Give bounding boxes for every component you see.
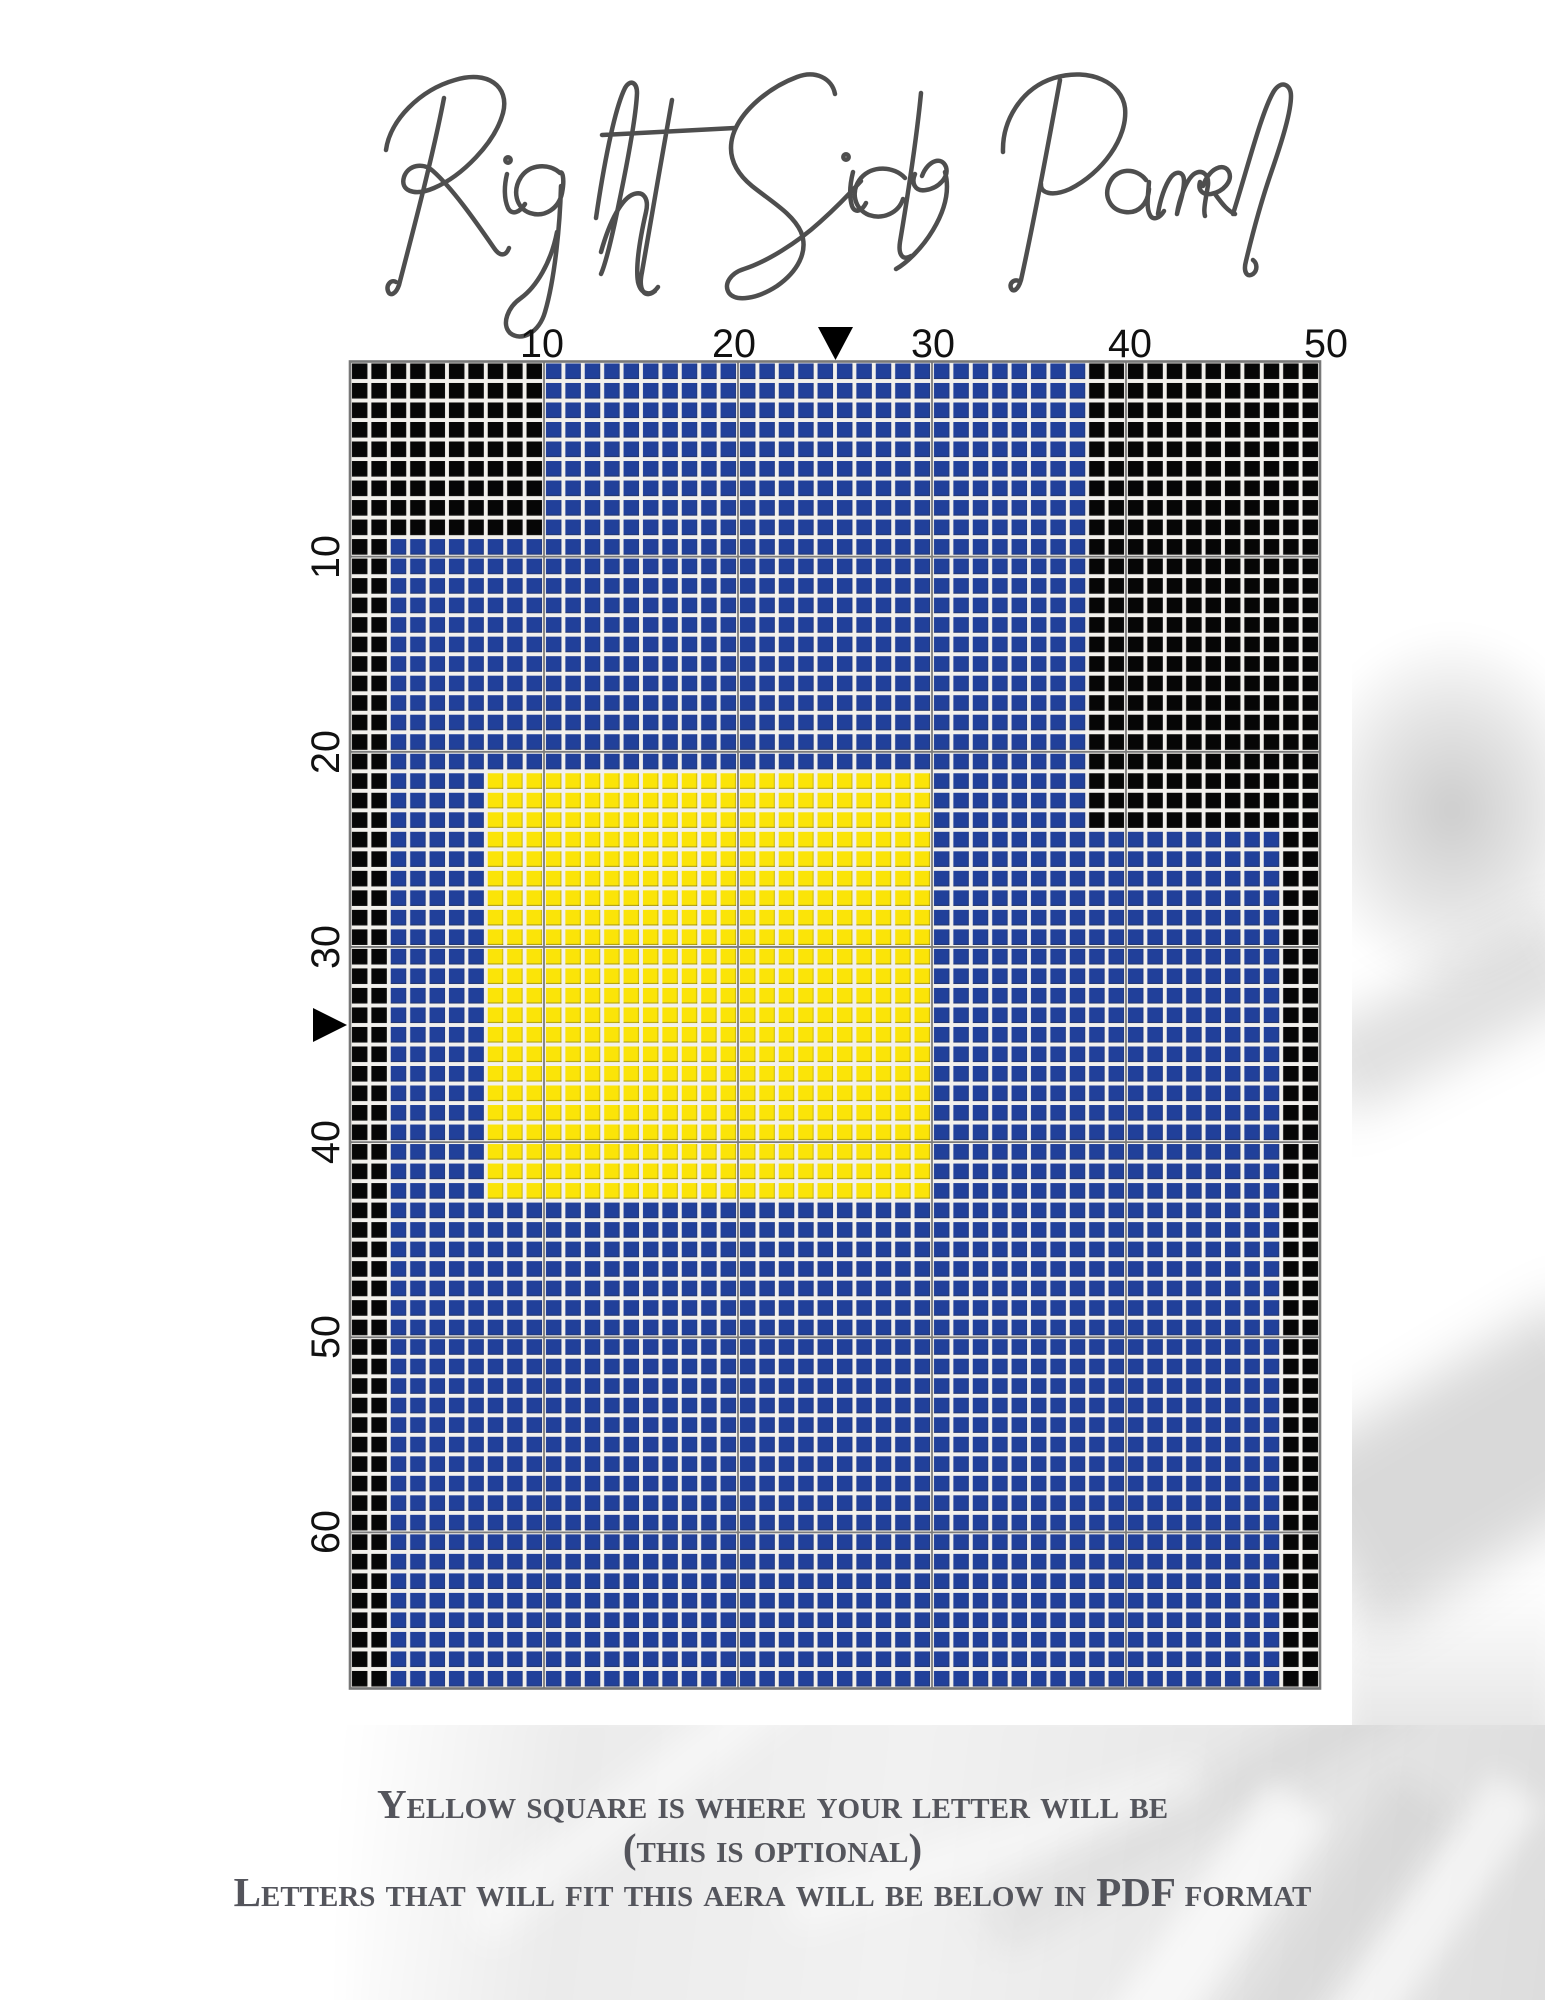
svg-text:20: 20 (712, 322, 756, 366)
svg-text:30: 30 (911, 322, 955, 366)
svg-text:30: 30 (304, 925, 348, 969)
svg-text:10: 10 (520, 322, 564, 366)
svg-text:40: 40 (304, 1120, 348, 1164)
svg-text:20: 20 (304, 730, 348, 774)
svg-text:50: 50 (304, 1315, 348, 1359)
svg-text:50: 50 (1304, 322, 1348, 366)
svg-text:40: 40 (1108, 322, 1152, 366)
svg-text:60: 60 (304, 1510, 348, 1554)
svg-text:10: 10 (304, 535, 348, 579)
